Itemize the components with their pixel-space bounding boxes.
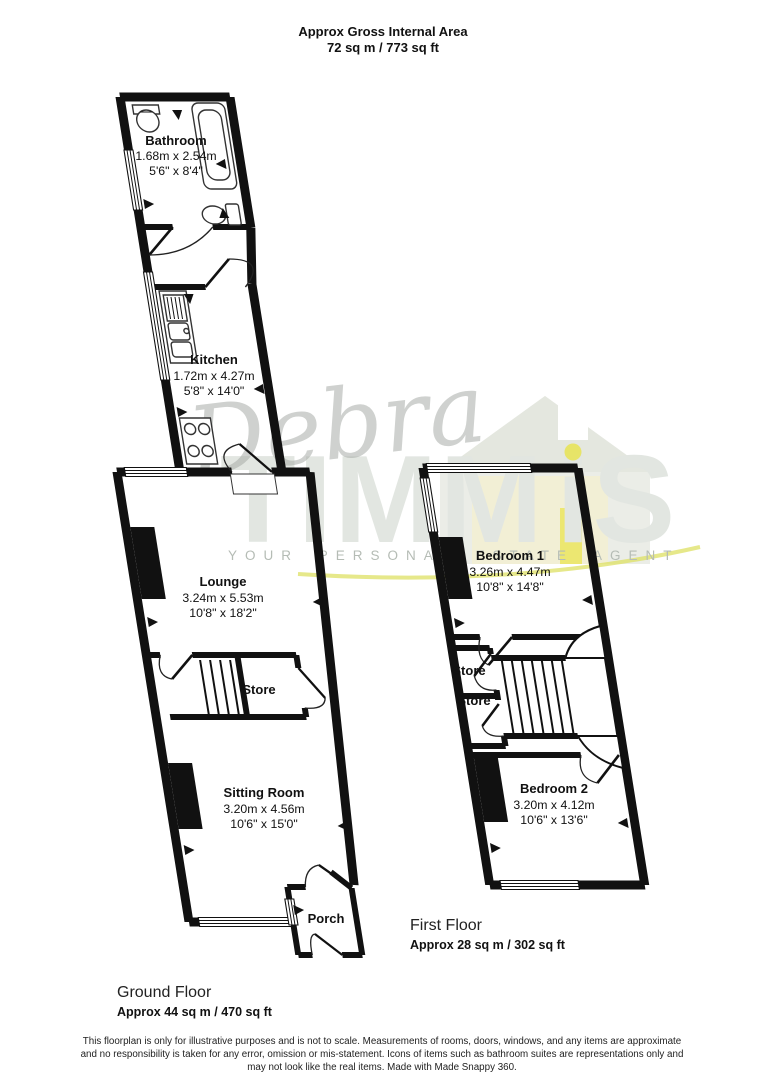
floorplan-image: TIMM iS Debra YOUR PERSONAL ESTATE AGENT xyxy=(0,0,764,1080)
lounge-dims-m: 3.24m x 5.53m xyxy=(182,591,263,605)
store1-label: Store xyxy=(452,663,485,678)
disclaimer-line2: and no responsibility is taken for any e… xyxy=(81,1049,684,1060)
porch-label: Porch xyxy=(308,911,345,926)
kitchen-label: Kitchen xyxy=(190,352,238,367)
lounge-dims-ft: 10'8" x 18'2" xyxy=(189,606,256,620)
store-ground-label: Store xyxy=(242,682,275,697)
bedroom2-dims-ft: 10'6" x 13'6" xyxy=(520,813,587,827)
brand-i-dot xyxy=(565,444,582,461)
sitting-room-dims-m: 3.20m x 4.56m xyxy=(223,802,304,816)
floorplan-page: TIMM iS Debra YOUR PERSONAL ESTATE AGENT xyxy=(0,0,764,1080)
bedroom2-dims-m: 3.20m x 4.12m xyxy=(513,798,594,812)
disclaimer-line3: may not look like the real items. Made w… xyxy=(247,1062,517,1073)
first-stairs xyxy=(496,626,623,768)
bedroom1-dims-ft: 10'8" x 14'8" xyxy=(476,580,543,594)
bedroom1-label: Bedroom 1 xyxy=(476,548,544,563)
sink-icon xyxy=(132,105,162,132)
lounge-label: Lounge xyxy=(200,574,247,589)
sitting-room-window xyxy=(198,918,291,927)
kitchen-dims-m: 1.72m x 4.27m xyxy=(173,369,254,383)
bedroom1-front-window xyxy=(426,464,531,473)
gross-area-value: 72 sq m / 773 sq ft xyxy=(327,40,440,55)
hob-icon xyxy=(179,418,217,464)
bathroom-dims-ft: 5'6" x 8'4" xyxy=(149,164,203,178)
lounge-window xyxy=(124,468,187,477)
ground-stairs xyxy=(200,660,239,714)
ground-floor-title: Ground Floor xyxy=(117,984,212,1001)
first-floor-area: Approx 28 sq m / 302 sq ft xyxy=(410,938,566,952)
gross-area-title: Approx Gross Internal Area xyxy=(298,24,468,39)
bedroom2-label: Bedroom 2 xyxy=(520,781,588,796)
sitting-room-label: Sitting Room xyxy=(224,785,305,800)
bathroom-dims-m: 1.68m x 2.54m xyxy=(135,149,216,163)
first-floor-title: First Floor xyxy=(410,917,483,934)
ground-floor-area: Approx 44 sq m / 470 sq ft xyxy=(117,1005,273,1019)
disclaimer-line1: This floorplan is only for illustrative … xyxy=(83,1036,682,1047)
kitchen-dims-ft: 5'8" x 14'0" xyxy=(184,384,245,398)
bedroom2-window xyxy=(500,881,579,890)
store2-label: Store xyxy=(457,693,490,708)
bedroom1-dims-m: 3.26m x 4.47m xyxy=(469,565,550,579)
bathroom-label: Bathroom xyxy=(145,133,206,148)
sitting-room-dims-ft: 10'6" x 15'0" xyxy=(230,817,297,831)
